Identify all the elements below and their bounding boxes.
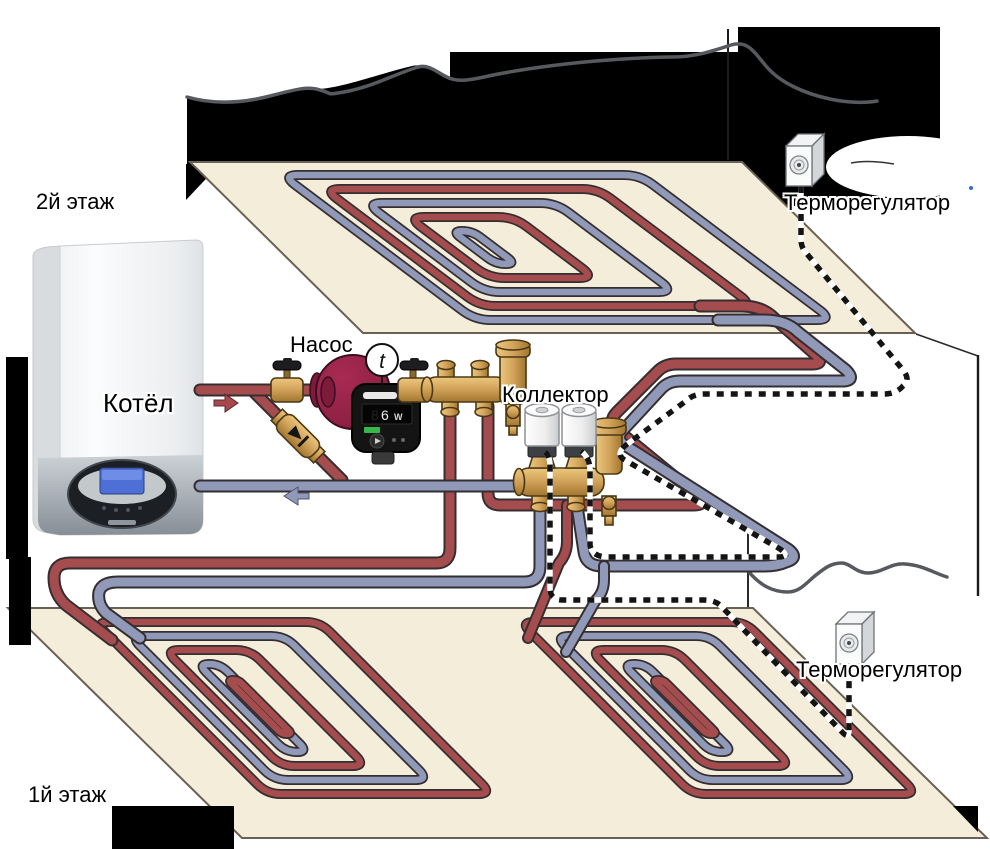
underfloor-heating-diagram: 8 6 W xyxy=(0,0,990,849)
pump-display-unit: W xyxy=(394,412,403,422)
boiler-brand-mark xyxy=(108,520,136,525)
wall-edge-diagonal xyxy=(916,334,978,356)
supply-manifold xyxy=(422,340,531,435)
wall-white-cutout xyxy=(826,136,990,198)
circulation-pump: 8 6 W xyxy=(316,355,420,464)
boiler-unit xyxy=(33,240,203,535)
thermo-actuator-2 xyxy=(562,404,596,469)
diagram-canvas: 8 6 W xyxy=(0,0,990,849)
pump-logo xyxy=(363,392,397,399)
artifact-dot xyxy=(969,186,973,190)
pump-cap xyxy=(372,452,394,464)
thermostat-floor1 xyxy=(836,612,874,664)
return-manifold xyxy=(514,404,627,526)
thermostat-floor2 xyxy=(786,134,824,186)
pump-display-green-bar xyxy=(364,427,380,433)
svg-text:8: 8 xyxy=(371,407,379,423)
supply-flow-arrow xyxy=(214,394,238,412)
check-valve xyxy=(269,407,327,465)
thermo-actuator-1 xyxy=(525,404,559,469)
pump-display-value: 6 xyxy=(381,407,389,423)
ball-valve-left xyxy=(271,358,303,402)
air-vent xyxy=(500,352,526,404)
